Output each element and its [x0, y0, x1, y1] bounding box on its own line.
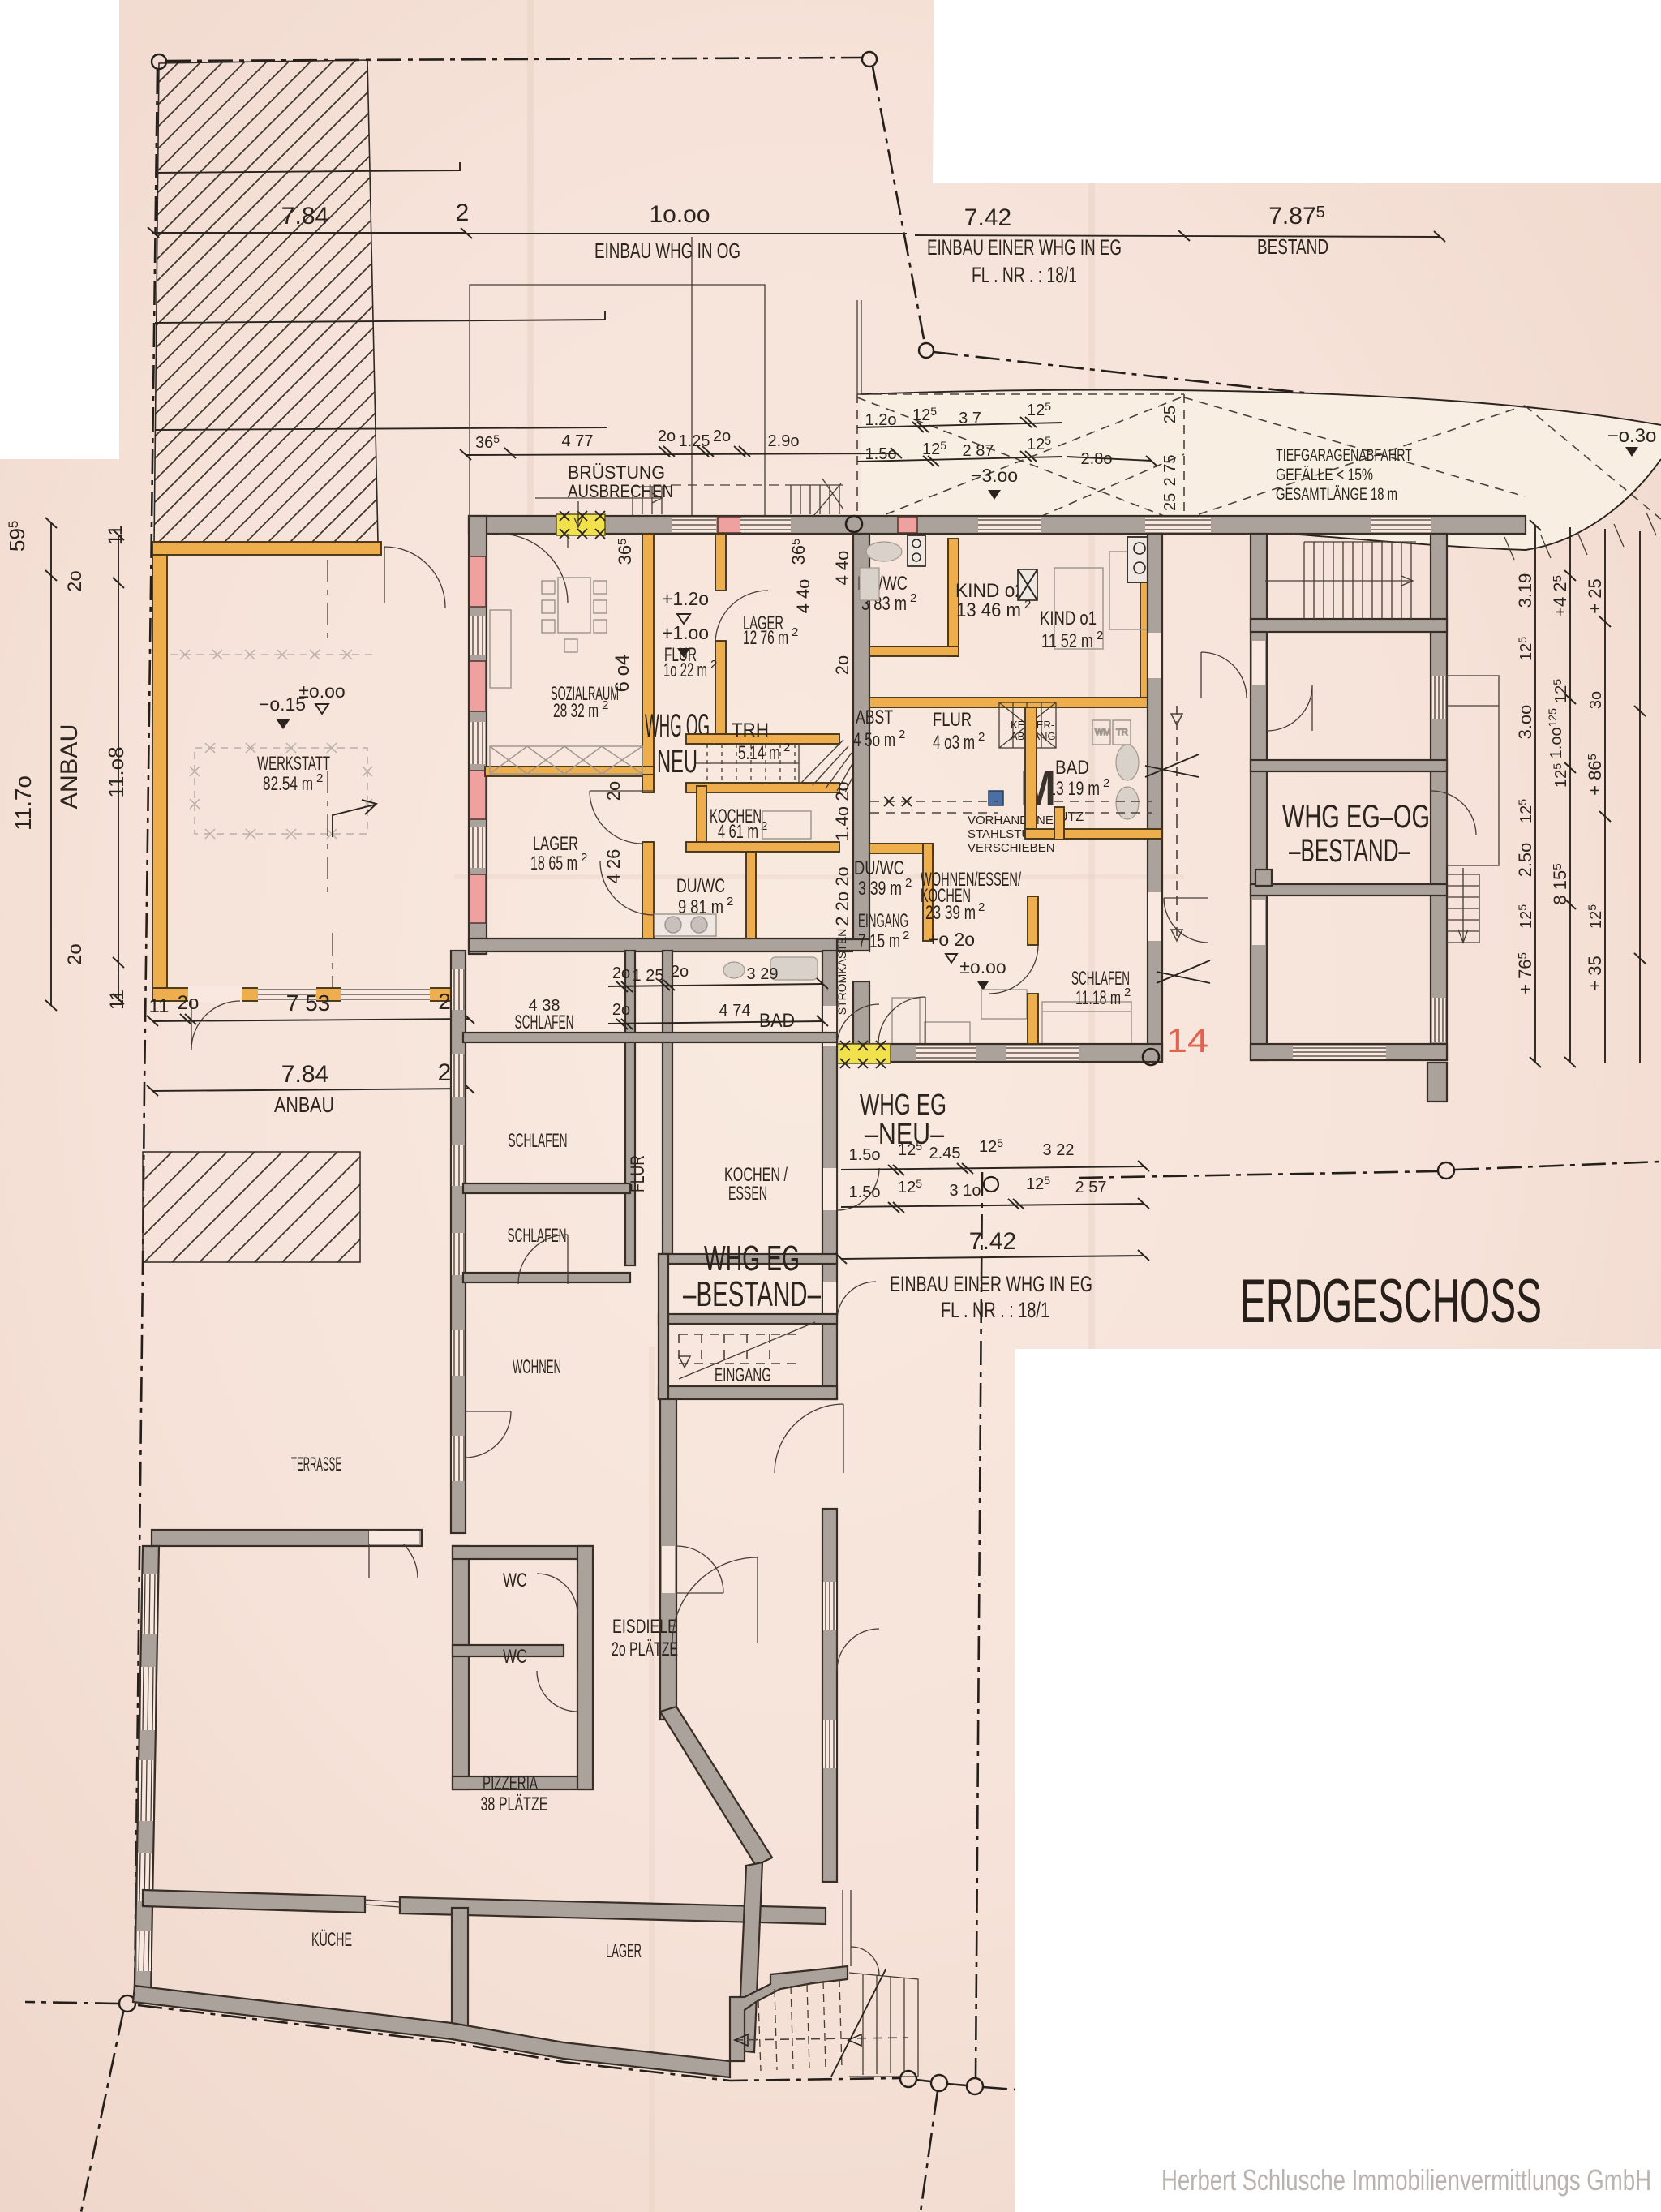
svg-text:+1.2o: +1.2o — [662, 588, 709, 609]
svg-text:+o 2o: +o 2o — [928, 929, 975, 950]
svg-text:2 57: 2 57 — [1075, 1179, 1107, 1196]
svg-text:2: 2 — [978, 900, 985, 914]
svg-text:2o: 2o — [64, 943, 86, 965]
svg-text:11.18 m: 11.18 m — [1075, 987, 1121, 1009]
svg-text:ESSEN: ESSEN — [728, 1183, 767, 1205]
svg-text:ERDGESCHOSS: ERDGESCHOSS — [1240, 1267, 1542, 1336]
svg-text:38 PLÄTZE: 38 PLÄTZE — [481, 1793, 548, 1815]
svg-text:BAD: BAD — [1055, 757, 1089, 779]
svg-text:WM: WM — [1095, 728, 1111, 737]
svg-text:WC: WC — [503, 1570, 527, 1591]
svg-text:1.25: 1.25 — [679, 432, 710, 450]
svg-text:2: 2 — [1124, 986, 1131, 999]
svg-text:1o 22 m: 1o 22 m — [663, 659, 707, 681]
svg-text:2: 2 — [438, 989, 451, 1014]
svg-text:2: 2 — [438, 1059, 452, 1086]
svg-text:FLUR: FLUR — [933, 709, 972, 731]
svg-text:1.5o: 1.5o — [849, 1146, 881, 1164]
svg-text:LAGER: LAGER — [606, 1940, 642, 1962]
svg-text:3 1o: 3 1o — [950, 1182, 981, 1200]
svg-text:7.84: 7.84 — [281, 203, 328, 230]
svg-text:2: 2 — [910, 591, 916, 605]
svg-text:+1.oo: +1.oo — [662, 622, 709, 643]
svg-text:1 25: 1 25 — [633, 967, 664, 985]
svg-text:7 53: 7 53 — [286, 990, 331, 1016]
svg-text:2.9o: 2.9o — [768, 432, 800, 450]
svg-text:11: 11 — [149, 995, 170, 1017]
svg-text:2: 2 — [899, 728, 905, 741]
svg-text:WHG EG–OG: WHG EG–OG — [1282, 799, 1430, 835]
svg-text:BESTAND: BESTAND — [1257, 234, 1328, 259]
svg-text:EINBAU EINER WHG IN EG: EINBAU EINER WHG IN EG — [927, 235, 1122, 260]
svg-text:23 39 m: 23 39 m — [925, 902, 976, 924]
svg-text:2o: 2o — [603, 781, 624, 801]
svg-text:EINGANG: EINGANG — [858, 910, 908, 932]
svg-text:FL . NR . : 18/1: FL . NR . : 18/1 — [972, 263, 1077, 287]
svg-text:2: 2 — [581, 851, 587, 865]
svg-text:3.oo: 3.oo — [1515, 705, 1535, 740]
svg-text:4 o3 m: 4 o3 m — [933, 732, 975, 754]
svg-text:2: 2 — [710, 658, 717, 672]
svg-text:ANBAU: ANBAU — [56, 724, 83, 810]
svg-text:25: 25 — [1161, 406, 1179, 423]
svg-text:2: 2 — [316, 771, 323, 785]
svg-text:AUSBRECHEN: AUSBRECHEN — [568, 481, 673, 501]
svg-text:SCHLAFEN: SCHLAFEN — [515, 1012, 574, 1033]
svg-text:4 61 m: 4 61 m — [718, 821, 758, 843]
svg-text:2: 2 — [727, 895, 733, 908]
svg-text:2 75: 2 75 — [1161, 455, 1179, 487]
svg-text:BRÜSTUNG: BRÜSTUNG — [568, 462, 665, 483]
svg-text:11: 11 — [106, 990, 128, 1010]
svg-text:3o: 3o — [1587, 691, 1605, 709]
svg-text:2o: 2o — [671, 963, 689, 981]
svg-text:4 38: 4 38 — [529, 997, 560, 1015]
svg-text:2.5o: 2.5o — [1515, 843, 1535, 878]
svg-text:WC: WC — [503, 1646, 527, 1668]
svg-text:GESAMTLÄNGE 18 m: GESAMTLÄNGE 18 m — [1276, 485, 1397, 504]
svg-text:7 15 m: 7 15 m — [858, 930, 900, 952]
svg-text:11.7o: 11.7o — [11, 775, 36, 831]
svg-text:2: 2 — [792, 625, 798, 639]
svg-text:18 65 m: 18 65 m — [530, 853, 577, 874]
svg-text:25: 25 — [1161, 493, 1179, 511]
svg-text:VERSCHIEBEN: VERSCHIEBEN — [968, 841, 1055, 855]
svg-text:PIZZERIA: PIZZERIA — [483, 1772, 538, 1794]
svg-text:3 39 m: 3 39 m — [858, 878, 902, 900]
svg-text:KIND o1: KIND o1 — [1040, 608, 1097, 629]
svg-text:+ 35: + 35 — [1585, 956, 1605, 990]
svg-text:2: 2 — [602, 698, 608, 712]
svg-text:LAGER: LAGER — [533, 833, 578, 855]
svg-text:EISDIELE: EISDIELE — [612, 1616, 677, 1638]
svg-text:28 32 m: 28 32 m — [553, 700, 599, 722]
svg-text:–BESTAND–: –BESTAND– — [1289, 833, 1410, 869]
svg-text:2o: 2o — [832, 655, 852, 675]
svg-text:2: 2 — [783, 741, 790, 754]
svg-text:7.42: 7.42 — [964, 204, 1011, 231]
svg-text:EINGANG: EINGANG — [715, 1364, 771, 1386]
svg-text:+ 25: + 25 — [1585, 578, 1605, 613]
svg-text:EINBAU WHG IN OG: EINBAU WHG IN OG — [594, 238, 740, 263]
svg-text:4 5o m: 4 5o m — [853, 729, 895, 751]
svg-text:BAD: BAD — [759, 1010, 795, 1032]
svg-text:6 o4: 6 o4 — [612, 655, 633, 693]
svg-text:4 4o: 4 4o — [793, 579, 813, 614]
svg-text:TR: TR — [1116, 728, 1128, 737]
svg-text:WHG EG: WHG EG — [704, 1239, 800, 1278]
svg-text:82.54 m: 82.54 m — [263, 773, 313, 795]
svg-text:VORHANDENE: VORHANDENE — [968, 814, 1054, 827]
svg-text:KÜCHE: KÜCHE — [311, 1929, 352, 1951]
svg-text:7.84: 7.84 — [281, 1061, 328, 1088]
svg-text:FLUR: FLUR — [627, 1155, 649, 1192]
svg-text:±o.oo: ±o.oo — [959, 956, 1006, 977]
svg-text:4 77: 4 77 — [562, 432, 594, 450]
svg-text:−3.oo: −3.oo — [971, 465, 1018, 486]
svg-text:DU/WC: DU/WC — [676, 875, 725, 897]
svg-text:13 46 m: 13 46 m — [956, 599, 1021, 621]
svg-text:2o: 2o — [612, 1001, 630, 1019]
svg-text:WOHNEN: WOHNEN — [513, 1356, 561, 1378]
svg-text:3.19: 3.19 — [1515, 573, 1535, 608]
svg-text:1o.oo: 1o.oo — [649, 201, 710, 228]
svg-text:2 87: 2 87 — [963, 442, 994, 460]
svg-text:1.4o 2o: 1.4o 2o — [832, 781, 852, 840]
svg-text:2o: 2o — [713, 427, 731, 445]
svg-text:4 4o: 4 4o — [832, 551, 852, 586]
svg-text:5.14 m: 5.14 m — [738, 742, 780, 764]
svg-text:–BESTAND–: –BESTAND– — [683, 1274, 821, 1314]
svg-text:2o: 2o — [658, 427, 676, 445]
svg-text:4 74: 4 74 — [719, 1002, 751, 1020]
svg-text:−o.3o: −o.3o — [1607, 425, 1657, 447]
svg-text:EINBAU EINER WHG IN EG: EINBAU EINER WHG IN EG — [890, 1272, 1092, 1296]
svg-text:ABST: ABST — [856, 707, 893, 728]
svg-text:11.o8: 11.o8 — [104, 746, 128, 797]
svg-text:DU/WC: DU/WC — [854, 857, 904, 879]
svg-text:FL . NR . : 18/1: FL . NR . : 18/1 — [941, 1298, 1049, 1322]
svg-text:4 26: 4 26 — [603, 849, 624, 884]
svg-text:2: 2 — [1097, 629, 1103, 642]
svg-text:11 52 m: 11 52 m — [1041, 630, 1093, 652]
svg-text:2o: 2o — [178, 992, 200, 1014]
svg-text:ANBAU: ANBAU — [274, 1093, 334, 1117]
svg-text:11: 11 — [105, 525, 127, 545]
svg-text:7.42: 7.42 — [969, 1228, 1016, 1255]
svg-text:SCHLAFEN: SCHLAFEN — [1071, 968, 1130, 990]
svg-text:2o PLÄTZE: 2o PLÄTZE — [612, 1639, 678, 1660]
svg-text:SCHLAFEN: SCHLAFEN — [509, 1130, 568, 1152]
svg-text:TIEFGARAGENABFAHRT: TIEFGARAGENABFAHRT — [1276, 446, 1412, 465]
svg-text:GEFÄLLE < 15%: GEFÄLLE < 15% — [1276, 466, 1373, 484]
svg-text:3 22: 3 22 — [1043, 1141, 1075, 1159]
svg-text:2o: 2o — [64, 570, 86, 592]
svg-text:TRH: TRH — [732, 719, 769, 741]
svg-text:KIND o2: KIND o2 — [955, 580, 1025, 602]
svg-text:2.45: 2.45 — [929, 1145, 961, 1162]
svg-text:3 29: 3 29 — [747, 965, 779, 983]
svg-text:14: 14 — [1166, 1021, 1208, 1059]
svg-text:2o: 2o — [612, 964, 630, 982]
svg-text:2 2o 2o: 2 2o 2o — [832, 866, 852, 926]
svg-text:2: 2 — [456, 200, 470, 226]
svg-text:TERRASSE: TERRASSE — [291, 1454, 341, 1475]
svg-text:2: 2 — [978, 730, 985, 744]
svg-text:1.5o: 1.5o — [849, 1183, 881, 1201]
svg-text:NEU: NEU — [657, 744, 697, 780]
svg-text:Herbert Schlusche Immobilienve: Herbert Schlusche Immobilienvermittlungs… — [1161, 2163, 1651, 2197]
svg-text:2: 2 — [903, 929, 909, 943]
svg-text:2: 2 — [905, 876, 912, 890]
svg-text:2: 2 — [1103, 776, 1109, 790]
svg-text:SCHLAFEN: SCHLAFEN — [508, 1225, 567, 1247]
svg-text:WHG EG: WHG EG — [860, 1088, 946, 1121]
svg-text:±o.oo: ±o.oo — [298, 681, 345, 702]
svg-text:12 76 m: 12 76 m — [743, 627, 788, 649]
